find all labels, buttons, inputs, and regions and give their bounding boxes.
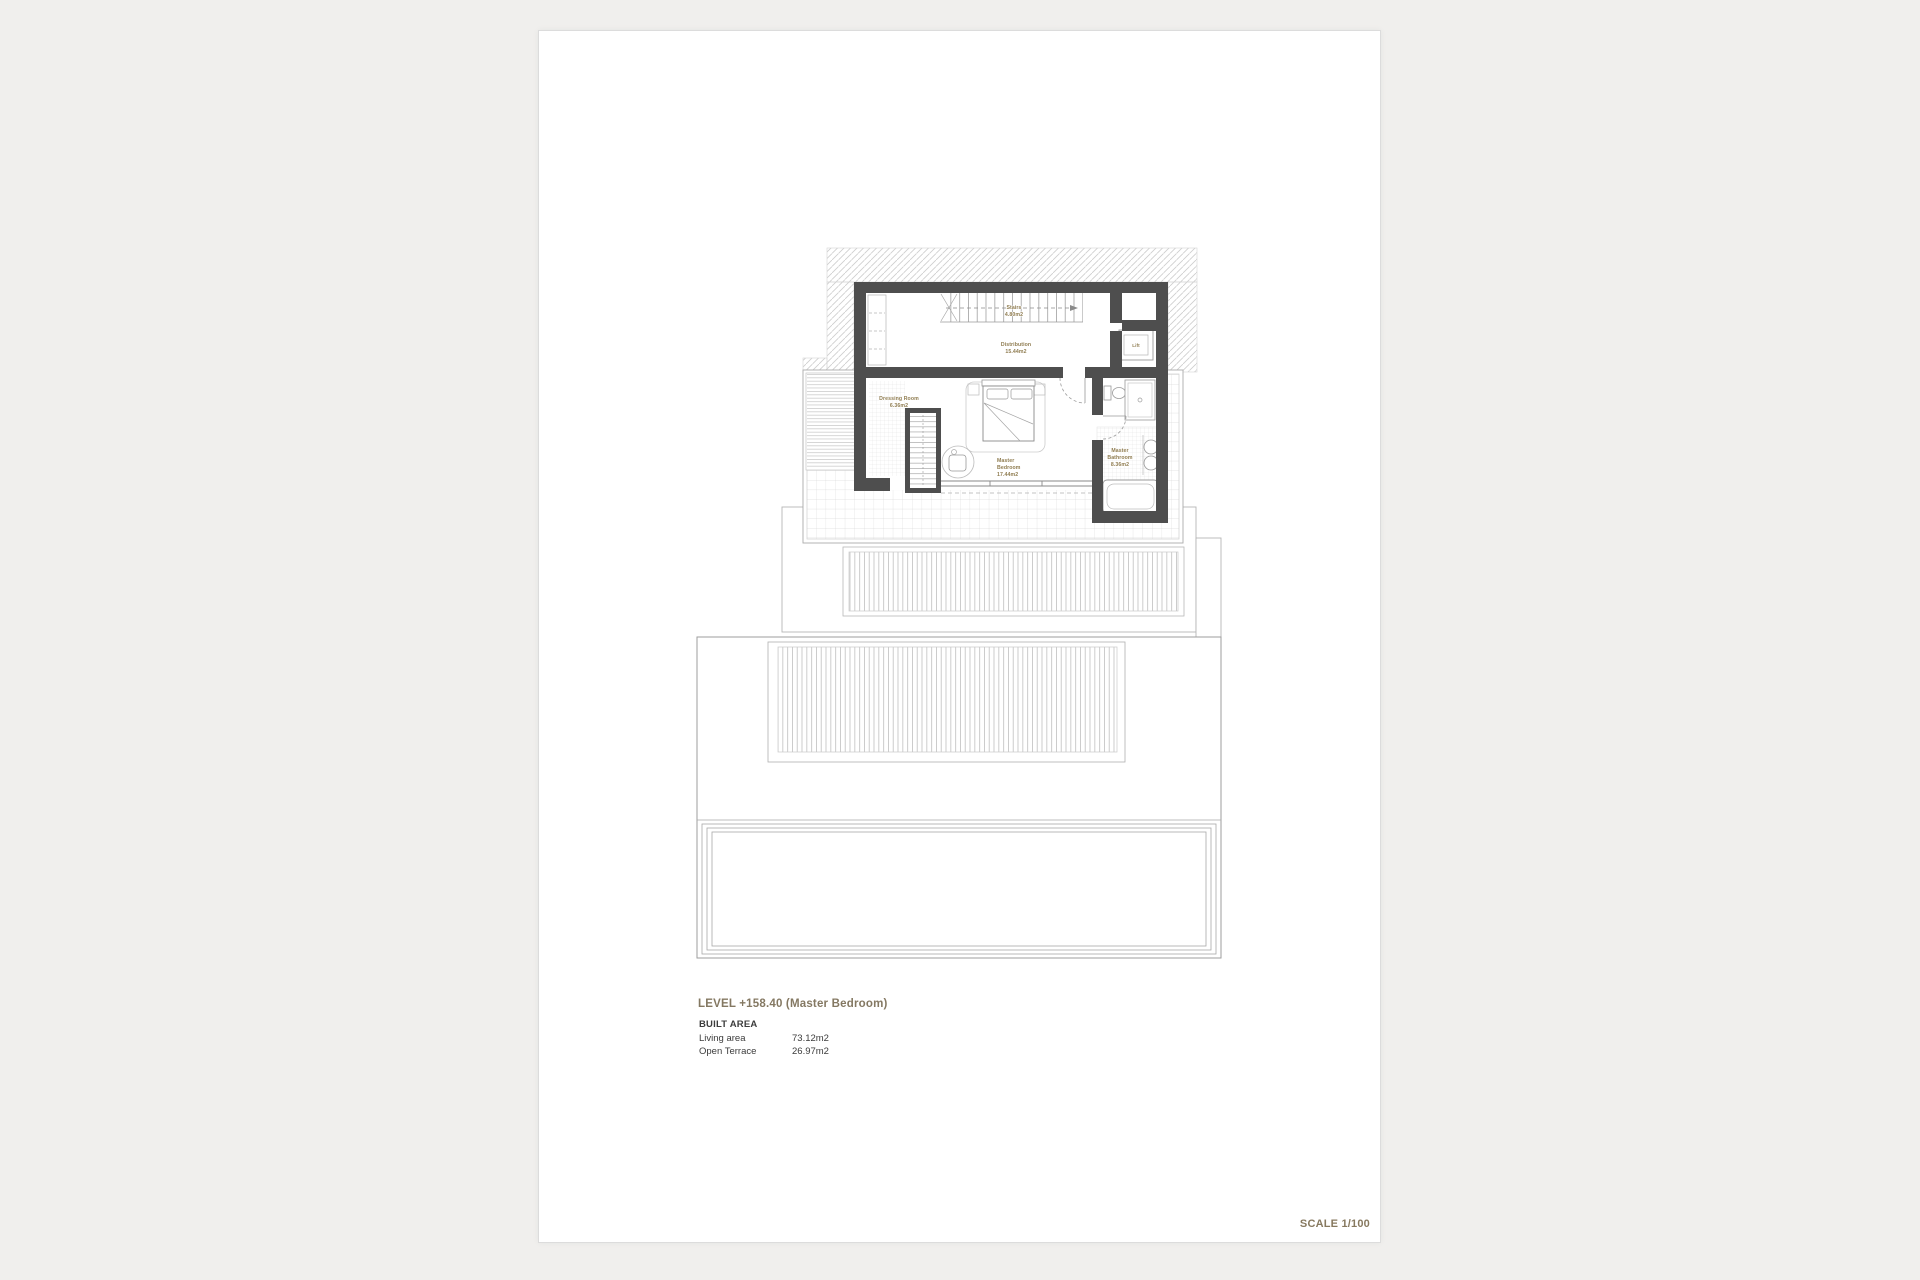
lower-terrace-side-strip: [1196, 538, 1221, 637]
wall-bathroom-bottom: [1092, 511, 1168, 523]
headboard: [982, 380, 1035, 386]
wall-left-stub: [854, 478, 890, 491]
built-area-table: BUILT AREA Living area 73.12m2 Open Terr…: [699, 1019, 899, 1057]
built-area-row: Open Terrace 26.97m2: [699, 1046, 899, 1057]
floor-plan-drawing: Stairs 4.80m2 Distribution 15.44m2 Dress…: [0, 0, 1920, 1280]
label-distribution: Distribution: [1001, 342, 1031, 348]
label-distribution-area: 15.44m2: [1005, 349, 1026, 355]
label-master-bathroom-1: Master: [1111, 448, 1128, 454]
wall-mid-left: [854, 367, 1063, 378]
wall-right: [1156, 293, 1168, 523]
built-area-row: Living area 73.12m2: [699, 1033, 899, 1044]
desktop-background: { "document": { "level_title": "LEVEL +1…: [0, 0, 1920, 1280]
area-value: 73.12m2: [792, 1033, 829, 1044]
built-area-heading: BUILT AREA: [699, 1019, 899, 1030]
label-lift: Lift: [1132, 343, 1140, 348]
hatch-top-band: [827, 248, 1197, 282]
lower-level-outlines: [697, 507, 1221, 958]
sink-2: [1144, 456, 1158, 470]
wall-mid-right: [1085, 367, 1156, 378]
hatch-left-notch: [803, 358, 827, 371]
area-value: 26.97m2: [792, 1046, 829, 1057]
wall-nook-lift: [1122, 320, 1156, 331]
label-master-bedroom-2: Bedroom: [997, 465, 1021, 471]
shower: [1125, 380, 1155, 420]
outdoor-stair: [806, 373, 856, 470]
label-master-bedroom-area: 17.44m2: [997, 472, 1018, 478]
bathtub: [1103, 480, 1158, 513]
label-master-bedroom-1: Master: [997, 458, 1014, 464]
label-master-bathroom-area: 8.36m2: [1111, 462, 1129, 468]
wall-stair-nook: [1110, 293, 1122, 323]
label-dressing-room: Dressing Room: [879, 396, 919, 402]
wall-bathroom-lower: [1092, 440, 1103, 523]
distribution-closet: [868, 295, 886, 365]
wall-left-upper: [854, 293, 866, 378]
wall-bathroom-upper: [1092, 378, 1103, 415]
area-label: Open Terrace: [699, 1046, 756, 1057]
wall-lift-lobby: [1110, 331, 1122, 367]
dressing-closet-island: [905, 408, 941, 493]
deck-band-lower: [768, 642, 1125, 762]
wall-left-lower: [854, 378, 866, 478]
label-dressing-room-area: 6.36m2: [890, 403, 908, 409]
label-stairs: Stairs: [1006, 305, 1021, 311]
wall-top: [854, 282, 1168, 293]
sink-1: [1144, 440, 1158, 454]
title-block: LEVEL +158.40 (Master Bedroom): [698, 998, 888, 1010]
label-master-bathroom-2: Bathroom: [1107, 455, 1133, 461]
hatch-right-band: [1168, 282, 1197, 372]
hatch-left-band: [827, 282, 854, 371]
label-stairs-area: 4.80m2: [1005, 312, 1023, 318]
level-title: LEVEL +158.40 (Master Bedroom): [698, 998, 888, 1010]
area-label: Living area: [699, 1033, 745, 1044]
deck-band-upper: [843, 547, 1184, 616]
scale-label: SCALE 1/100: [1270, 1218, 1370, 1230]
